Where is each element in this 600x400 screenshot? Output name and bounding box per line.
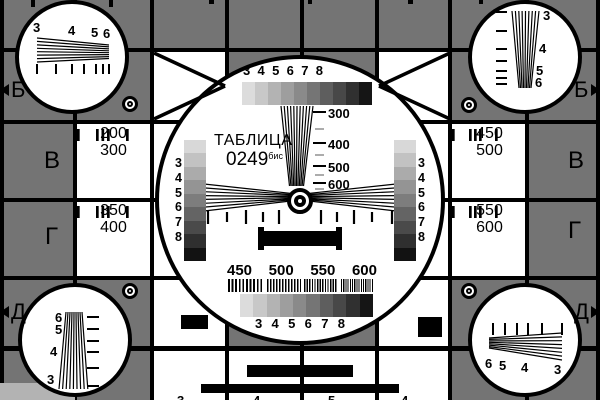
convergence-target — [461, 97, 477, 113]
corner-tl-num: 6 — [103, 26, 110, 41]
scale-digit: 450 — [227, 262, 252, 279]
ruler-ticks-bl — [87, 317, 99, 386]
grayscale-step — [255, 82, 268, 105]
scale-digit: 7 — [175, 216, 182, 229]
grayscale-step — [346, 294, 359, 317]
grayscale-scale-right: 345678 — [418, 157, 438, 244]
grayscale-scale-bottom: 345678 — [255, 316, 345, 331]
corner-bl-num: 4 — [50, 344, 57, 359]
reference-bar-cap-left — [258, 227, 264, 250]
grayscale-step — [394, 180, 416, 193]
side-cell-left-bottom: 350 400 — [77, 203, 150, 236]
black-rect-left — [181, 315, 208, 329]
side-cell-right-top: 450 500 — [452, 126, 527, 159]
convergence-target — [461, 283, 477, 299]
scale-digit: 3 — [175, 157, 182, 170]
bottom-edge-digit: 4 — [253, 393, 260, 400]
grayscale-step — [253, 294, 266, 317]
grayscale-step — [268, 82, 281, 105]
corner-br-num: 6 — [485, 356, 492, 371]
side-cell-value: 400 — [100, 220, 127, 236]
grayscale-step — [394, 140, 416, 153]
grayscale-step — [267, 294, 280, 317]
edge-letter-v-left: В — [44, 147, 60, 175]
horizontal-wedge-left — [204, 184, 295, 211]
wedge-label-600: 600 — [328, 177, 350, 192]
edge-arrow-left-icon — [0, 84, 9, 96]
grayscale-step — [184, 140, 206, 153]
side-cell-value: 600 — [476, 220, 503, 236]
corner-tr-num: 3 — [543, 8, 550, 23]
wedge-label-400: 400 — [328, 137, 350, 152]
corner-tl-num: 4 — [68, 23, 75, 38]
corner-fan-bl — [59, 312, 88, 389]
grayscale-step — [320, 294, 333, 317]
convergence-target — [122, 96, 138, 112]
corner-br-num: 5 — [499, 358, 506, 373]
scale-digit: 5 — [272, 63, 279, 78]
scale-digit: 8 — [418, 231, 425, 244]
ruler-ticks-tr — [496, 12, 507, 84]
grayscale-step — [394, 234, 416, 247]
card-number-text: 0249 — [226, 149, 268, 170]
corner-tr-num: 4 — [539, 41, 546, 56]
grayscale-step — [184, 167, 206, 180]
horizontal-wedge-right — [305, 184, 396, 211]
card-title: ТАБЛИЦА — [214, 132, 292, 150]
grayscale-step — [184, 221, 206, 234]
grayscale-strip-right — [394, 140, 416, 261]
scale-digit: 5 — [288, 316, 295, 331]
grayscale-step — [184, 180, 206, 193]
edge-arrow-right-icon — [591, 306, 600, 318]
reference-bar-cap-right — [336, 227, 342, 250]
scale-digit: 8 — [316, 63, 323, 78]
test-card: 345678 345678 345678 345678 450500550600… — [0, 0, 600, 400]
grayscale-step — [320, 82, 333, 105]
bottom-edge-digit: 3 — [177, 393, 184, 400]
frequency-grating-500 — [267, 279, 301, 292]
scale-digit: 550 — [310, 262, 335, 279]
black-rect-right — [418, 317, 442, 337]
grayscale-step — [306, 294, 319, 317]
scale-digit: 4 — [418, 172, 425, 185]
corner-fan-br — [489, 333, 562, 360]
corner-br-num: 4 — [521, 360, 528, 375]
scale-digit: 6 — [287, 63, 294, 78]
grayscale-step — [359, 82, 372, 105]
grayscale-step — [184, 194, 206, 207]
tick-pattern — [452, 129, 498, 141]
grayscale-step — [294, 82, 307, 105]
corner-tl-num: 5 — [91, 25, 98, 40]
edge-arrow-right-icon — [591, 84, 600, 96]
scale-digit: 8 — [338, 316, 345, 331]
scale-digit: 6 — [418, 201, 425, 214]
grayscale-step — [333, 82, 346, 105]
grayscale-bar-top — [242, 82, 372, 105]
edge-letter-b-left: Б — [11, 77, 25, 103]
grayscale-step — [240, 294, 253, 317]
wedge-label-dashes — [313, 112, 326, 183]
grayscale-step — [184, 234, 206, 247]
scale-digit: 8 — [175, 231, 182, 244]
edge-letter-d-left: Д — [11, 299, 26, 325]
edge-letter-g-left: Г — [45, 223, 58, 251]
scale-digit: 500 — [269, 262, 294, 279]
corner-bl-num: 3 — [47, 372, 54, 387]
grayscale-scale-left: 345678 — [162, 157, 182, 244]
grayscale-step — [394, 194, 416, 207]
tick-pattern — [452, 206, 498, 218]
corner-tl-num: 3 — [33, 20, 40, 35]
grayscale-step — [394, 248, 416, 261]
grayscale-step — [281, 82, 294, 105]
edge-letter-d-right: Д — [574, 299, 589, 325]
wedge-minor-dashes — [315, 129, 324, 189]
card-number: 0249бис — [226, 149, 283, 171]
scale-digit: 600 — [352, 262, 377, 279]
grayscale-scale-top: 345678 — [243, 63, 323, 78]
grayscale-step — [280, 294, 293, 317]
ruler-ticks-tl — [37, 64, 109, 74]
center-bullseye-core — [294, 195, 306, 207]
bottom-bar-short — [247, 365, 353, 377]
scale-digit: 4 — [258, 63, 265, 78]
side-cell-value: 300 — [100, 143, 127, 159]
grayscale-step — [293, 294, 306, 317]
grayscale-step — [184, 153, 206, 166]
grayscale-step — [394, 153, 416, 166]
tick-pattern — [77, 129, 129, 141]
corner-bl-num: 5 — [55, 322, 62, 337]
scale-digit: 7 — [321, 316, 328, 331]
convergence-target — [122, 283, 138, 299]
side-cell-left-top: 200 300 — [77, 126, 150, 159]
grayscale-bar-bottom — [240, 294, 373, 317]
scale-digit: 6 — [305, 316, 312, 331]
frequency-grating-450 — [228, 279, 264, 292]
tick-pattern — [77, 206, 129, 218]
corner-tr-num: 6 — [535, 75, 542, 90]
scale-digit: 3 — [418, 157, 425, 170]
grayscale-strip-left — [184, 140, 206, 261]
scale-digit: 4 — [175, 172, 182, 185]
grayscale-step — [346, 82, 359, 105]
scale-digit: 5 — [175, 187, 182, 200]
grayscale-step — [394, 167, 416, 180]
grayscale-step — [307, 82, 320, 105]
corner-br-num: 3 — [554, 362, 561, 377]
scale-digit: 3 — [243, 63, 250, 78]
side-cell-right-bottom: 550 600 — [452, 203, 527, 236]
grayscale-step — [242, 82, 255, 105]
reference-bar — [262, 231, 338, 246]
scale-digit: 7 — [301, 63, 308, 78]
grayscale-step — [184, 248, 206, 261]
side-cell-value: 500 — [476, 143, 503, 159]
edge-letter-v-right: В — [568, 147, 584, 175]
scale-digit: 5 — [418, 187, 425, 200]
grayscale-step — [184, 207, 206, 220]
frequency-grating-550 — [304, 279, 338, 292]
grayscale-step — [360, 294, 373, 317]
edge-arrow-left-icon — [0, 306, 9, 318]
grayscale-step — [394, 221, 416, 234]
card-number-suffix: бис — [268, 151, 283, 161]
corner-fan-tl — [37, 38, 109, 62]
grayscale-step — [333, 294, 346, 317]
scale-digit: 7 — [418, 216, 425, 229]
bottom-edge-digits: 3 4 5 4 — [0, 392, 600, 400]
wedge-label-500: 500 — [328, 160, 350, 175]
scale-digit: 4 — [272, 316, 279, 331]
edge-letter-b-right: Б — [574, 77, 588, 103]
bottom-edge-digit: 4 — [401, 393, 408, 400]
edge-letter-g-right: Г — [568, 217, 581, 245]
frequency-grating-600 — [341, 279, 374, 292]
scale-digit: 3 — [255, 316, 262, 331]
grayscale-step — [394, 207, 416, 220]
frequency-labels: 450500550600 — [227, 262, 377, 279]
bottom-edge-digit: 5 — [328, 393, 335, 400]
scale-digit: 6 — [175, 201, 182, 214]
wedge-label-300: 300 — [328, 106, 350, 121]
